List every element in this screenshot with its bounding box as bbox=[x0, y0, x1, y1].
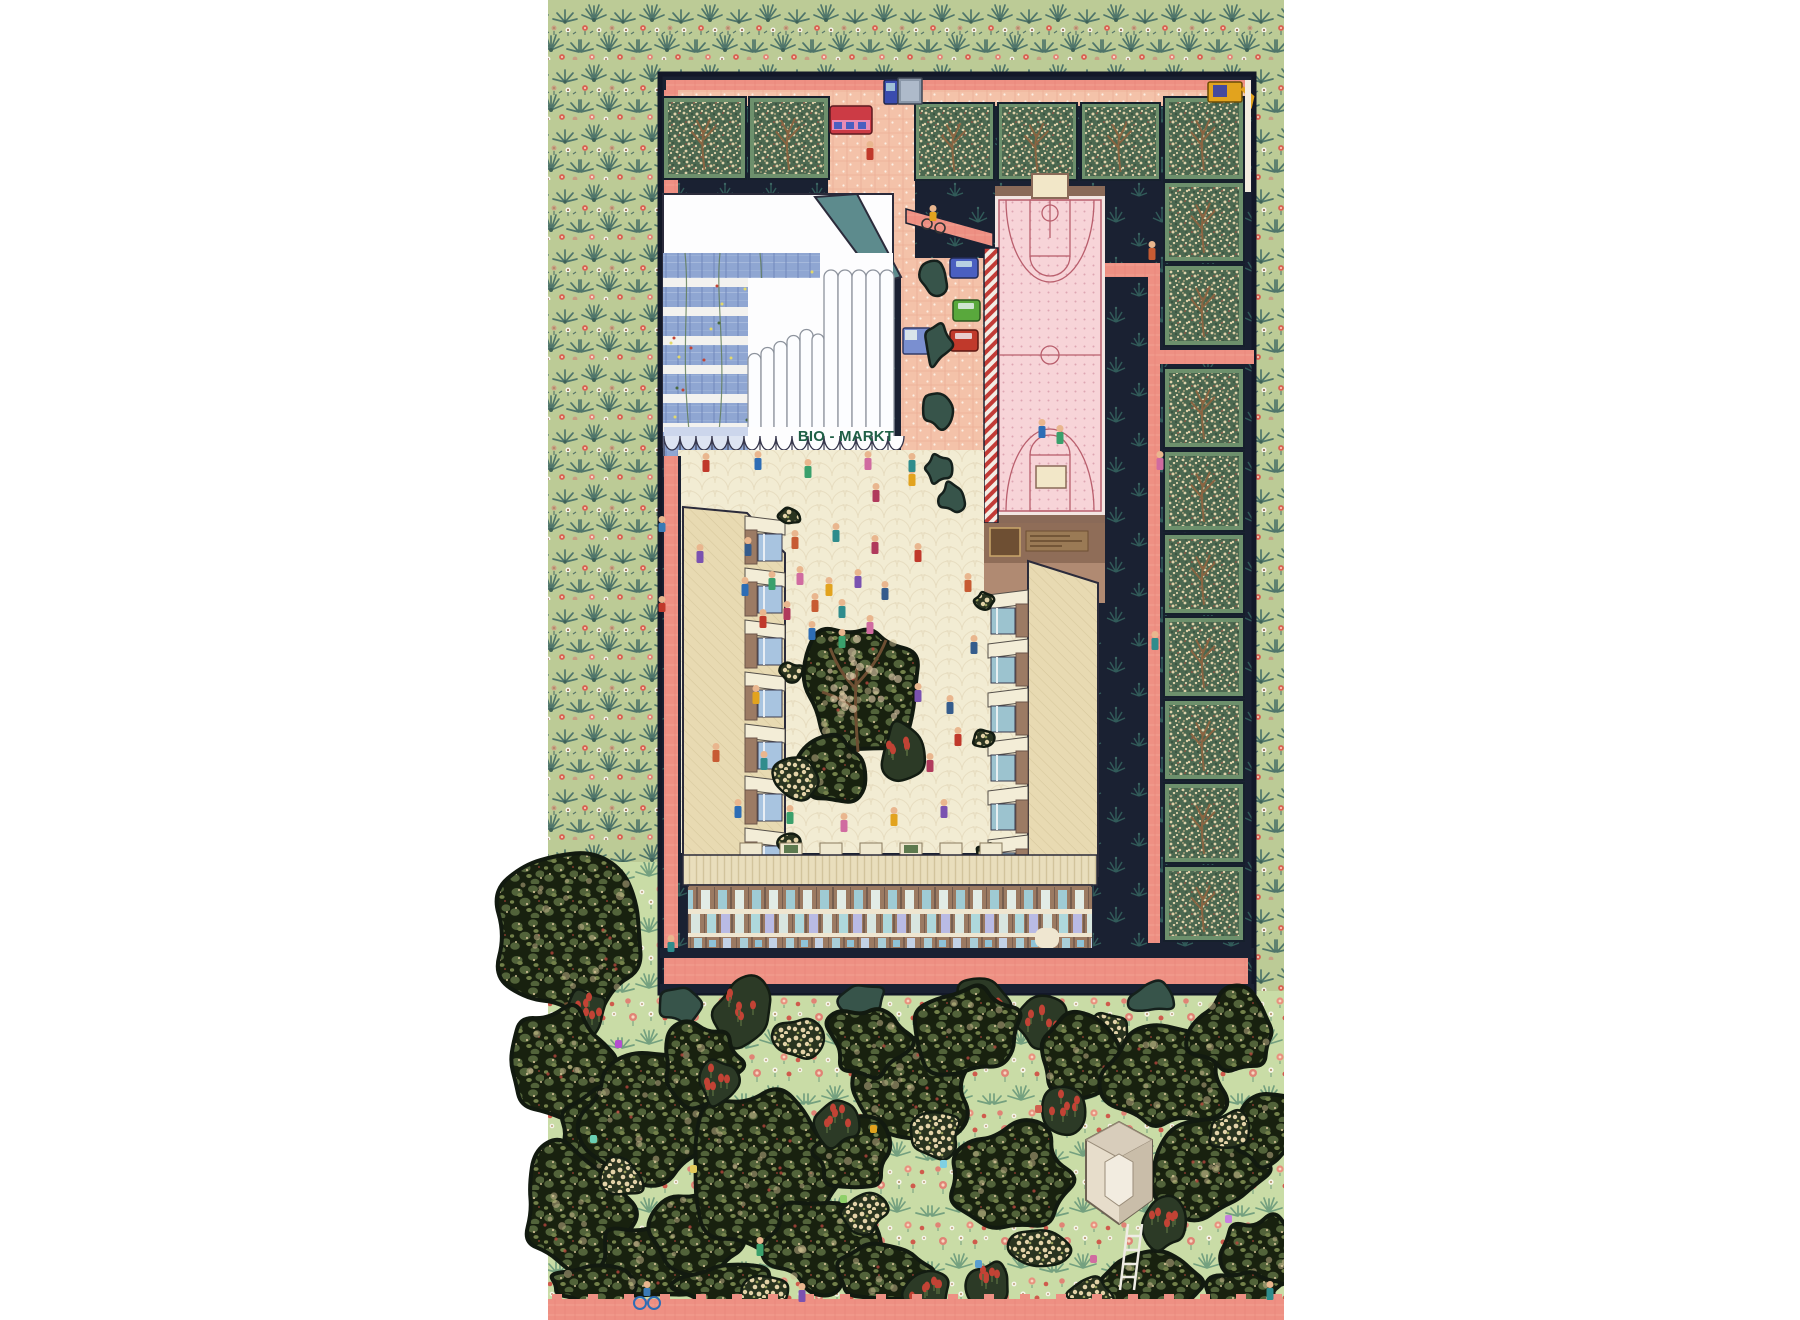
svg-text:BIO - MARKT: BIO - MARKT bbox=[798, 428, 894, 445]
